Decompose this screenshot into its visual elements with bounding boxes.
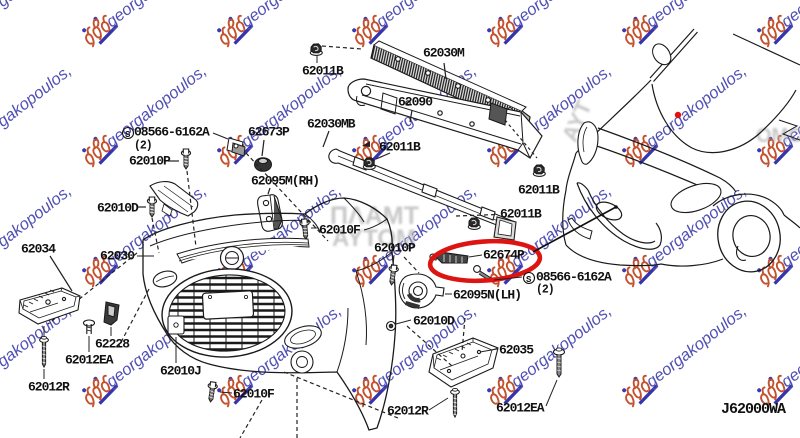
svg-text:08566-6162A: 08566-6162A bbox=[536, 269, 612, 284]
svg-text:62011B: 62011B bbox=[302, 63, 344, 78]
svg-text:62030MB: 62030MB bbox=[307, 116, 356, 131]
svg-text:62095N(LH): 62095N(LH) bbox=[453, 287, 521, 302]
svg-text:62011B: 62011B bbox=[379, 139, 421, 154]
svg-text:62010D: 62010D bbox=[97, 200, 139, 215]
svg-text:62030M: 62030M bbox=[423, 45, 465, 60]
svg-text:S: S bbox=[125, 130, 131, 140]
svg-text:62035: 62035 bbox=[499, 342, 534, 357]
svg-text:62010P: 62010P bbox=[374, 240, 416, 255]
svg-text:62012EA: 62012EA bbox=[65, 352, 114, 367]
svg-text:62010P: 62010P bbox=[129, 153, 171, 168]
svg-text:62010J: 62010J bbox=[160, 363, 201, 378]
svg-text:62673P: 62673P bbox=[248, 124, 290, 139]
svg-text:(2): (2) bbox=[536, 283, 554, 296]
svg-text:S: S bbox=[526, 275, 532, 285]
svg-text:J62000WA: J62000WA bbox=[721, 401, 786, 418]
svg-text:62012R: 62012R bbox=[387, 403, 429, 418]
svg-text:62010F: 62010F bbox=[233, 386, 275, 401]
svg-text:62012R: 62012R bbox=[28, 379, 70, 394]
svg-text:62030: 62030 bbox=[100, 248, 135, 263]
svg-text:62010F: 62010F bbox=[319, 222, 361, 237]
svg-text:08566-6162A: 08566-6162A bbox=[134, 124, 210, 139]
svg-text:62095M(RH): 62095M(RH) bbox=[251, 173, 319, 188]
svg-text:62090: 62090 bbox=[398, 94, 433, 109]
svg-text:(2): (2) bbox=[134, 139, 152, 152]
svg-text:62034: 62034 bbox=[21, 241, 56, 256]
svg-text:62674P: 62674P bbox=[483, 247, 525, 262]
svg-text:62011B: 62011B bbox=[500, 206, 542, 221]
svg-text:62228: 62228 bbox=[95, 336, 130, 351]
svg-text:62011B: 62011B bbox=[518, 182, 560, 197]
svg-text:62012EA: 62012EA bbox=[496, 400, 545, 415]
svg-text:62010D: 62010D bbox=[413, 313, 455, 328]
